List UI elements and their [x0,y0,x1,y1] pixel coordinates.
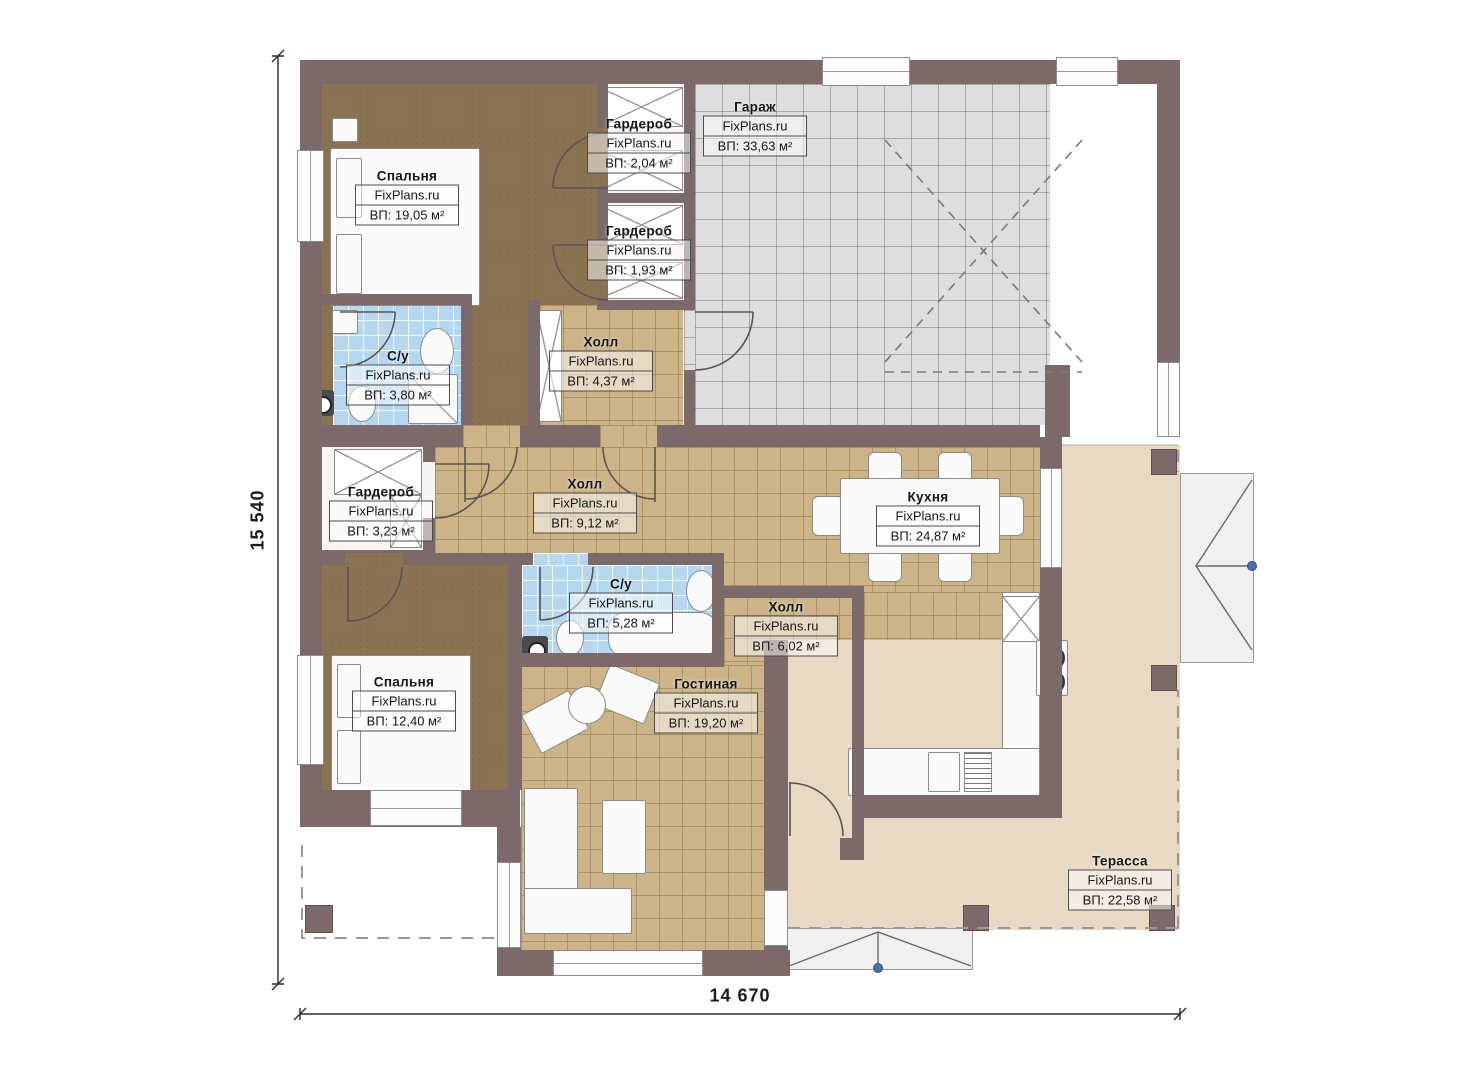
door-gap [533,553,588,565]
room-label-hall-2: Холл FixPlans.ru ВП: 9,12 м² [533,477,637,534]
window [297,655,324,765]
room-label-kitchen: Кухня FixPlans.ru ВП: 24,87 м² [876,490,980,547]
garage-gate-area [1050,84,1157,365]
room-label-hall-3: Холл FixPlans.ru ВП: 6,02 м² [734,600,838,657]
dishwasher [964,752,992,792]
wall-bath2-bottom [508,653,724,667]
room-area: ВП: 12,40 м² [352,712,456,732]
floor-plan-canvas: 15 540 14 670 Спальня FixPlans.ru ВП: 19… [0,0,1474,1080]
window [297,150,324,242]
room-area: ВП: 19,05 м² [355,206,459,226]
room-area: ВП: 4,37 м² [549,372,653,392]
room-name: Гардероб [329,485,433,500]
room-label-wardrobe-2: Гардероб FixPlans.ru ВП: 1,93 м² [587,224,691,281]
sofa-horizontal [524,888,632,934]
room-label-terrace: Терасса FixPlans.ru ВП: 22,58 м² [1068,854,1172,911]
room-label-wardrobe-3: Гардероб FixPlans.ru ВП: 3,23 м² [329,485,433,542]
column [1152,450,1176,474]
coffee-table-round [568,686,606,724]
room-label-bedroom-2: Спальня FixPlans.ru ВП: 12,40 м² [352,675,456,732]
wall-closet-divider [597,193,695,203]
room-area: ВП: 33,63 м² [703,137,807,157]
room-name: Гардероб [587,117,691,132]
watermark: FixPlans.ru [549,351,653,372]
dimension-width: 14 670 [709,986,770,1007]
door-gap [463,425,520,447]
wall-hall1-left [528,300,540,425]
room-name: Кухня [876,490,980,505]
tv-stand [602,800,646,874]
wall-garage-gate-stub [1045,365,1070,437]
room-label-living-room: Гостиная FixPlans.ru ВП: 19,20 м² [654,677,758,734]
wall-bath2-right [712,553,724,665]
watermark: FixPlans.ru [329,501,433,522]
steps-bottom [787,928,973,970]
window [1040,468,1062,568]
room-name: Спальня [355,169,459,184]
door-gap [684,310,695,370]
watermark: FixPlans.ru [876,506,980,527]
fridge [1002,596,1040,642]
room-area: ВП: 3,80 м² [346,386,450,406]
wall-garage-right [1157,60,1180,362]
door-gap [764,890,788,946]
watermark: FixPlans.ru [654,693,758,714]
watermark: FixPlans.ru [587,240,691,261]
wall-mid-horizontal [322,425,1040,447]
room-name: Гардероб [587,224,691,239]
watermark: FixPlans.ru [533,493,637,514]
watermark: FixPlans.ru [587,133,691,154]
room-area: ВП: 5,28 м² [569,614,673,634]
room-label-bathroom-2: С/у FixPlans.ru ВП: 5,28 м² [569,577,673,634]
room-label-garage: Гараж FixPlans.ru ВП: 33,63 м² [703,100,807,157]
door-gap [600,425,657,447]
room-label-bathroom-1: С/у FixPlans.ru ВП: 3,80 м² [346,349,450,406]
room-name: С/у [346,349,450,364]
watermark: FixPlans.ru [703,116,807,137]
kitchen-sink [928,752,960,792]
window [1157,362,1180,437]
room-area: ВП: 9,12 м² [533,514,637,534]
dimension-height: 15 540 [248,489,269,550]
window [497,862,521,948]
room-area: ВП: 19,20 м² [654,714,758,734]
wall-bath1-right [461,294,472,425]
room-label-bedroom-1: Спальня FixPlans.ru ВП: 19,05 м² [355,169,459,226]
nightstand [332,310,358,334]
door-gap [788,838,840,860]
room-area: ВП: 24,87 м² [876,527,980,547]
wall-hall3-top [724,586,864,598]
window [553,950,703,976]
room-name: Холл [533,477,637,492]
wall-bath1-top [322,294,472,305]
column [964,906,988,930]
room-area: ВП: 1,93 м² [587,261,691,281]
column [1152,666,1176,690]
wall-closet-divider [597,300,695,310]
room-area: ВП: 6,02 м² [734,637,838,657]
bed-2-pillow [337,730,361,784]
wall-bedroom2-right [508,553,522,790]
room-name: С/у [569,577,673,592]
room-name: Гостиная [654,677,758,692]
room-area: ВП: 22,58 м² [1068,891,1172,911]
window [822,57,910,86]
window [1056,57,1118,86]
watermark: FixPlans.ru [355,185,459,206]
room-area: ВП: 2,04 м² [587,154,691,174]
door-gap [345,553,403,565]
watermark: FixPlans.ru [1068,870,1172,891]
watermark: FixPlans.ru [569,593,673,614]
room-name: Терасса [1068,854,1172,869]
wall-kitchen-right-top [1040,437,1062,471]
window [370,790,462,826]
room-name: Холл [734,600,838,615]
room-name: Холл [549,335,653,350]
room-label-wardrobe-1: Гардероб FixPlans.ru ВП: 2,04 м² [587,117,691,174]
wall-top [300,60,1180,84]
room-area: ВП: 3,23 м² [329,522,433,542]
watermark: FixPlans.ru [352,691,456,712]
watermark: FixPlans.ru [734,616,838,637]
steps-right [1180,473,1254,663]
wall-kitchen-bottom [852,795,1062,818]
room-label-hall-1: Холл FixPlans.ru ВП: 4,37 м² [549,335,653,392]
room-name: Спальня [352,675,456,690]
wall-kitchen-right [1040,568,1062,798]
nightstand [332,118,358,142]
bed-1-pillow [336,234,362,294]
room-name: Гараж [703,100,807,115]
watermark: FixPlans.ru [346,365,450,386]
column [306,906,332,932]
